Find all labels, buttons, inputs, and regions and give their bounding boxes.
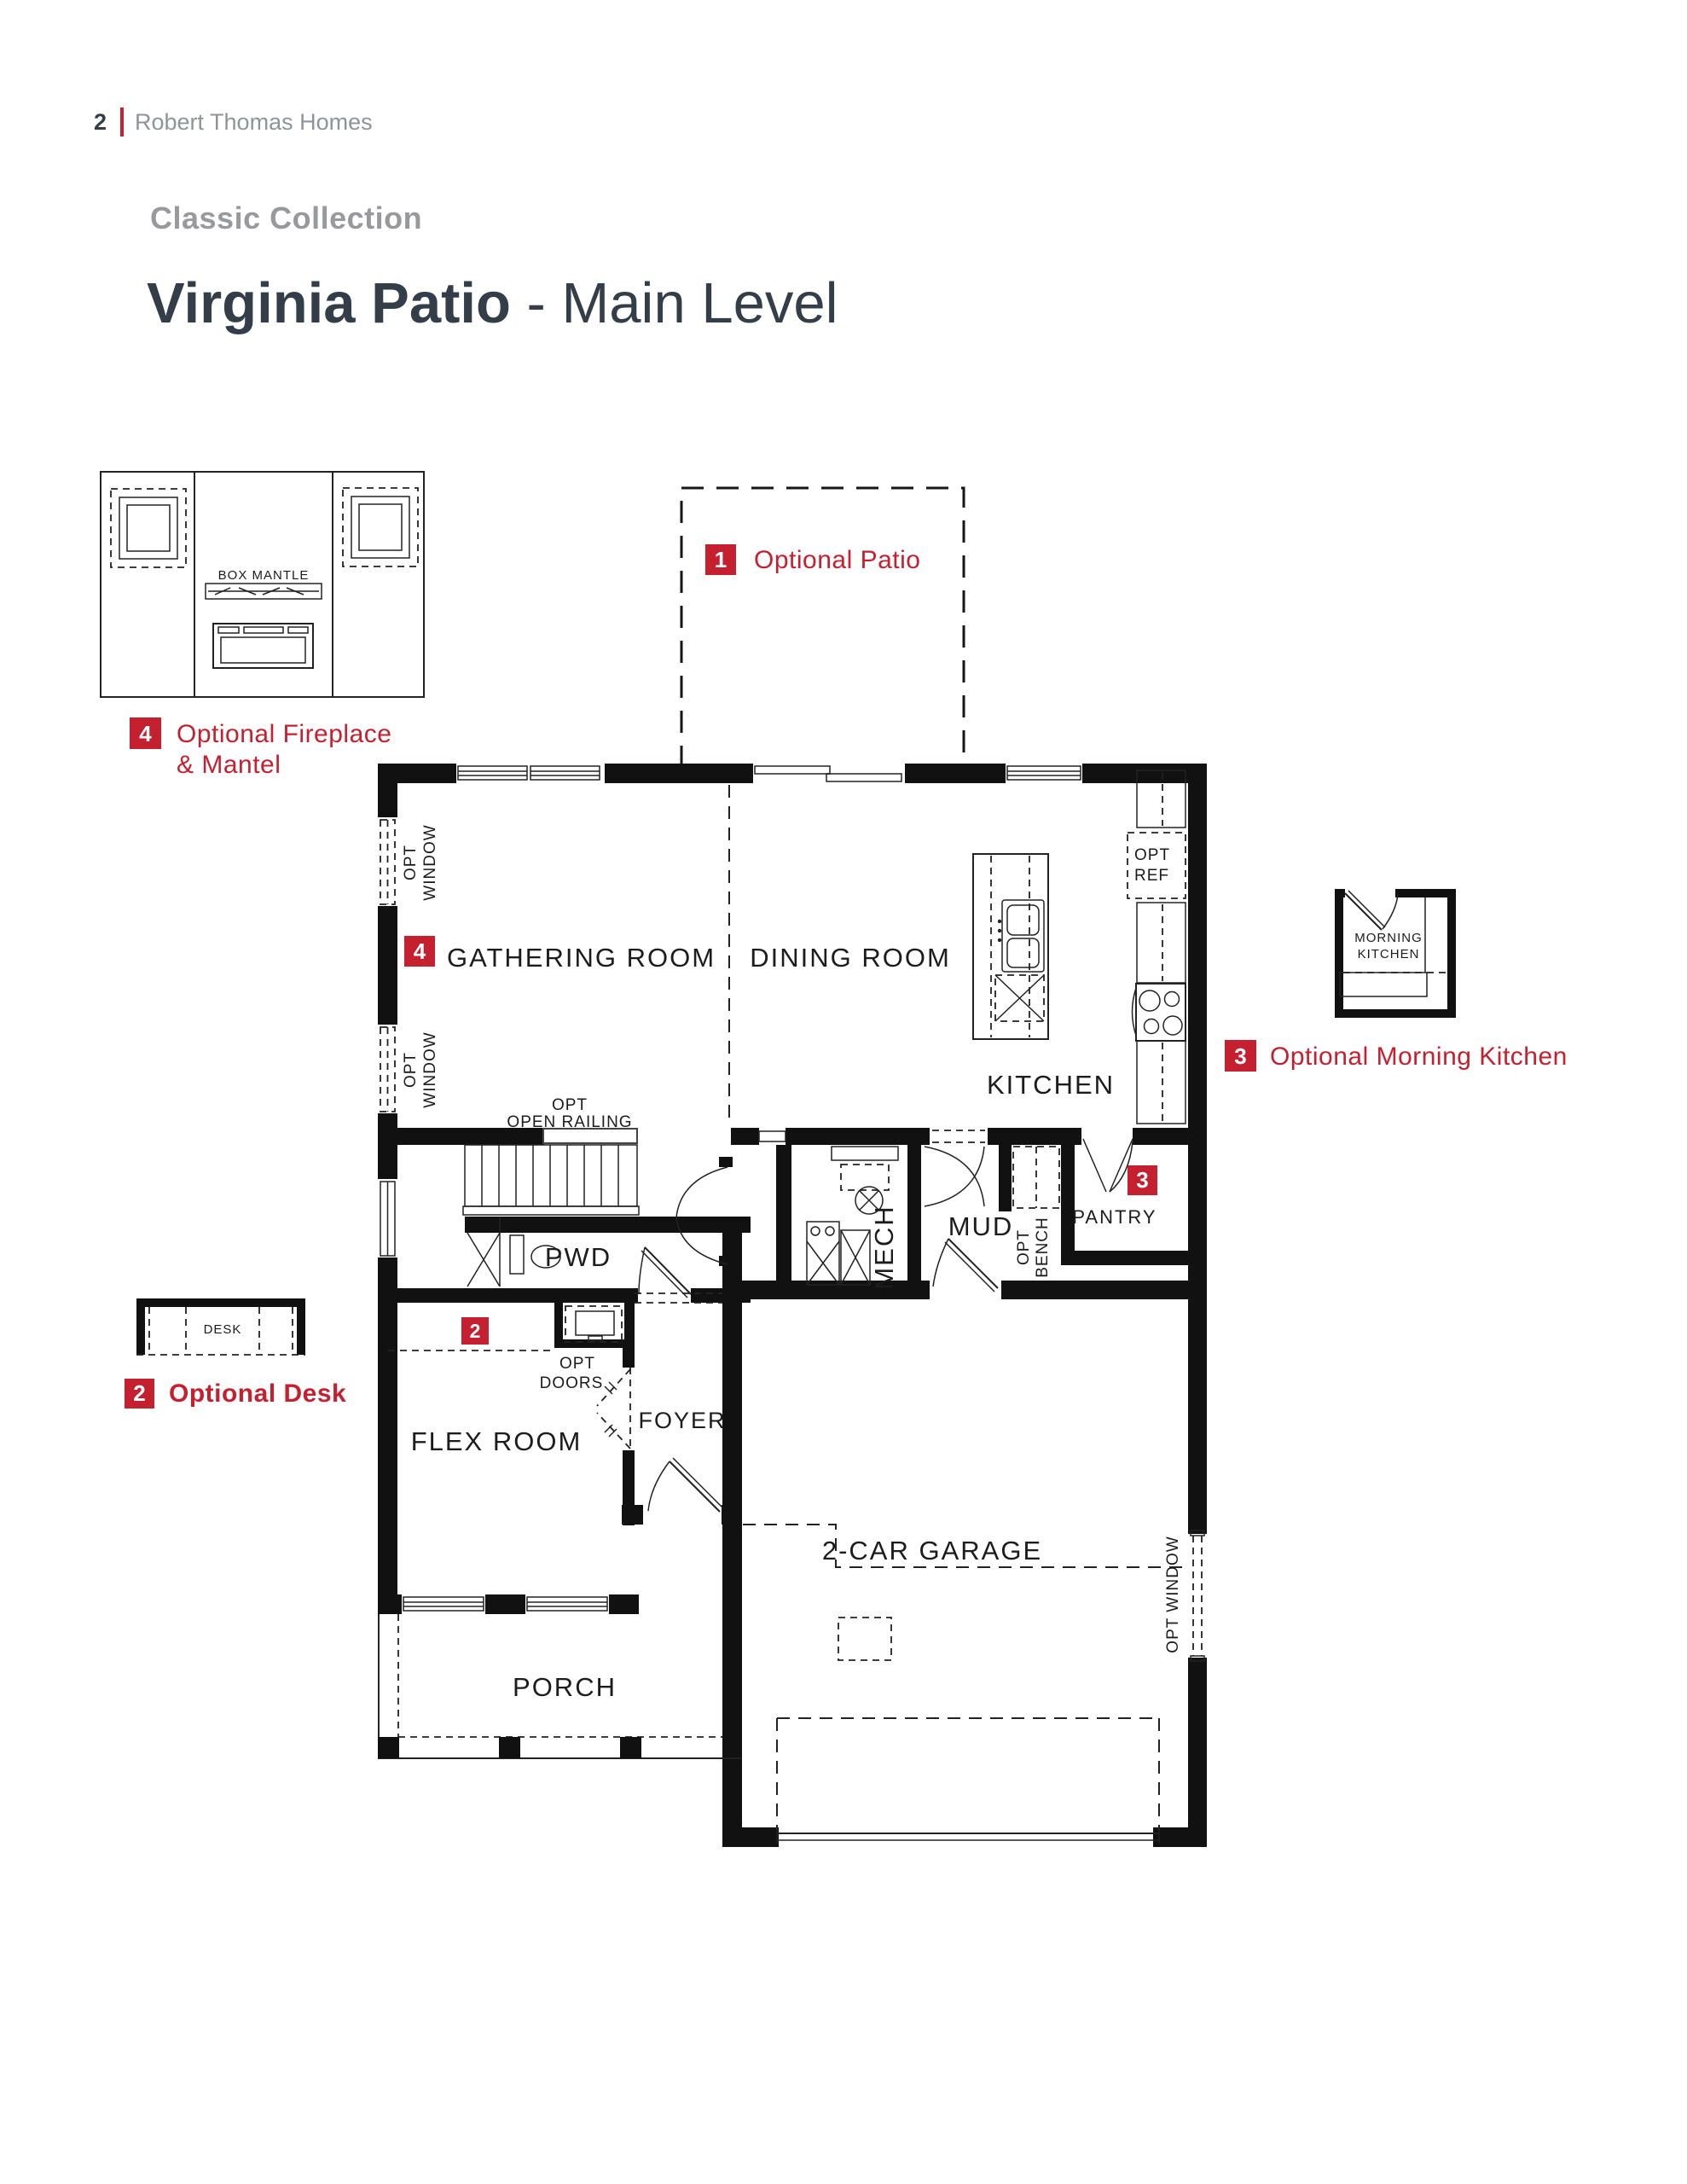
opt-bench-label-line1: OPT: [1015, 1229, 1033, 1265]
garage-opt-window-label: OPT WINDOW: [1164, 1536, 1182, 1653]
page-number: 2: [94, 109, 107, 135]
opt-window-1-label-line1: OPT: [402, 845, 420, 880]
room-label-pwd: PWD: [545, 1242, 612, 1272]
opt-doors-label-line1: OPT: [559, 1355, 595, 1373]
opt-doors-label-line2: DOORS: [540, 1374, 604, 1392]
patio-option-label: Optional Patio: [754, 546, 920, 574]
brand-name: Robert Thomas Homes: [135, 109, 373, 135]
room-label-gathering: GATHERING ROOM: [447, 943, 716, 973]
level-name: - Main Level: [511, 271, 838, 335]
badge-1-patio-num: 1: [715, 547, 727, 572]
header-divider: [120, 107, 124, 136]
badge-3-pantry-num: 3: [1136, 1167, 1148, 1193]
porch-post-1: [378, 1737, 399, 1758]
opt-open-railing-label-line1: OPT: [552, 1096, 588, 1114]
porch-post-2: [499, 1737, 520, 1758]
opt-window-1-label-line2: WINDOW: [421, 824, 439, 900]
opt-window-2-label-line1: OPT: [402, 1052, 420, 1088]
badge-4-fireplace-num: 4: [139, 721, 152, 746]
room-label-mud: MUD: [948, 1211, 1014, 1241]
page-title: Virginia Patio - Main Level: [147, 271, 838, 335]
badge-2-desk-num: 2: [133, 1380, 145, 1406]
opt-ref-label-line1: OPT: [1134, 846, 1170, 864]
morning-kitchen-label-line2: KITCHEN: [1358, 947, 1420, 961]
opt-bench-label-line2: BENCH: [1034, 1217, 1052, 1278]
fireplace-option-label-line2: & Mantel: [177, 751, 281, 779]
morning-kitchen-option-label: Optional Morning Kitchen: [1270, 1043, 1568, 1071]
badge-3-morning-kitchen-num: 3: [1234, 1043, 1246, 1069]
room-label-pantry: PANTRY: [1072, 1206, 1157, 1228]
opt-ref-label-line2: REF: [1134, 867, 1169, 885]
plan-name: Virginia Patio: [147, 271, 511, 335]
room-label-flex: FLEX ROOM: [411, 1426, 583, 1456]
badge-4-gathering-num: 4: [414, 938, 426, 964]
opt-window-2-label-line2: WINDOW: [421, 1031, 439, 1107]
floorplan-page: 2 Robert Thomas Homes Classic Collection…: [0, 0, 1687, 2184]
collection-title: Classic Collection: [150, 200, 422, 235]
porch-post-3: [620, 1737, 641, 1758]
page-header: 2 Robert Thomas Homes: [94, 107, 373, 136]
fireplace-option-label-line1: Optional Fireplace: [177, 720, 391, 748]
badge-2-flex-num: 2: [470, 1320, 481, 1342]
room-label-garage: 2-CAR GARAGE: [822, 1536, 1042, 1565]
room-label-dining: DINING ROOM: [750, 943, 951, 973]
desk-option-label: Optional Desk: [169, 1380, 346, 1408]
box-mantle-label: BOX MANTLE: [218, 568, 310, 583]
desk-detail-label: DESK: [204, 1322, 242, 1337]
room-label-porch: PORCH: [513, 1672, 617, 1702]
room-label-foyer: FOYER: [638, 1408, 726, 1433]
room-label-kitchen: KITCHEN: [987, 1070, 1115, 1100]
morning-kitchen-label-line1: MORNING: [1354, 931, 1423, 945]
room-label-mech: MECH: [869, 1205, 899, 1289]
opt-open-railing-label-line2: OPEN RAILING: [507, 1113, 632, 1131]
